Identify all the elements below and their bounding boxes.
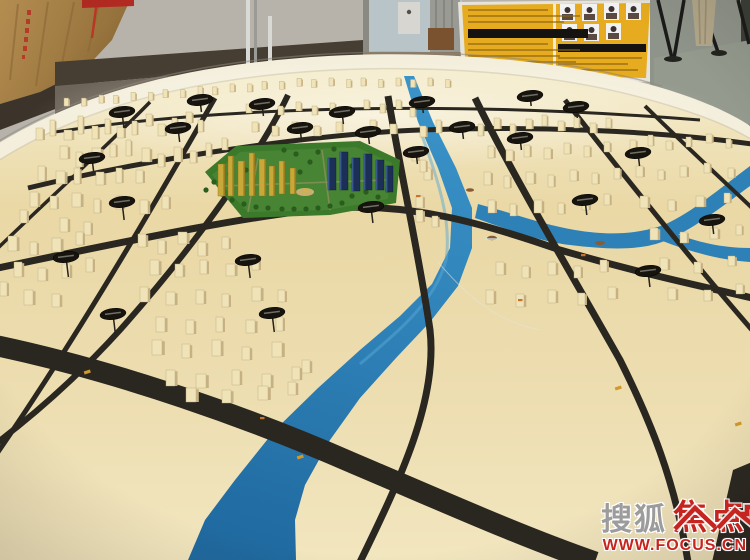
photo-city-planning-model: 搜狐 焦点 WWW.FOCUS.CN [0, 0, 750, 560]
photo-canvas [0, 0, 750, 560]
watermark-brand: 搜狐 焦点 [601, 501, 747, 535]
focus-roof-logo-icon [673, 501, 750, 531]
watermark-url: WWW.FOCUS.CN [601, 538, 747, 554]
watermark-brand-sohu: 搜狐 [601, 504, 667, 535]
photo-vignette [0, 0, 750, 560]
sohu-focus-watermark: 搜狐 焦点 WWW.FOCUS.CN [601, 501, 747, 554]
